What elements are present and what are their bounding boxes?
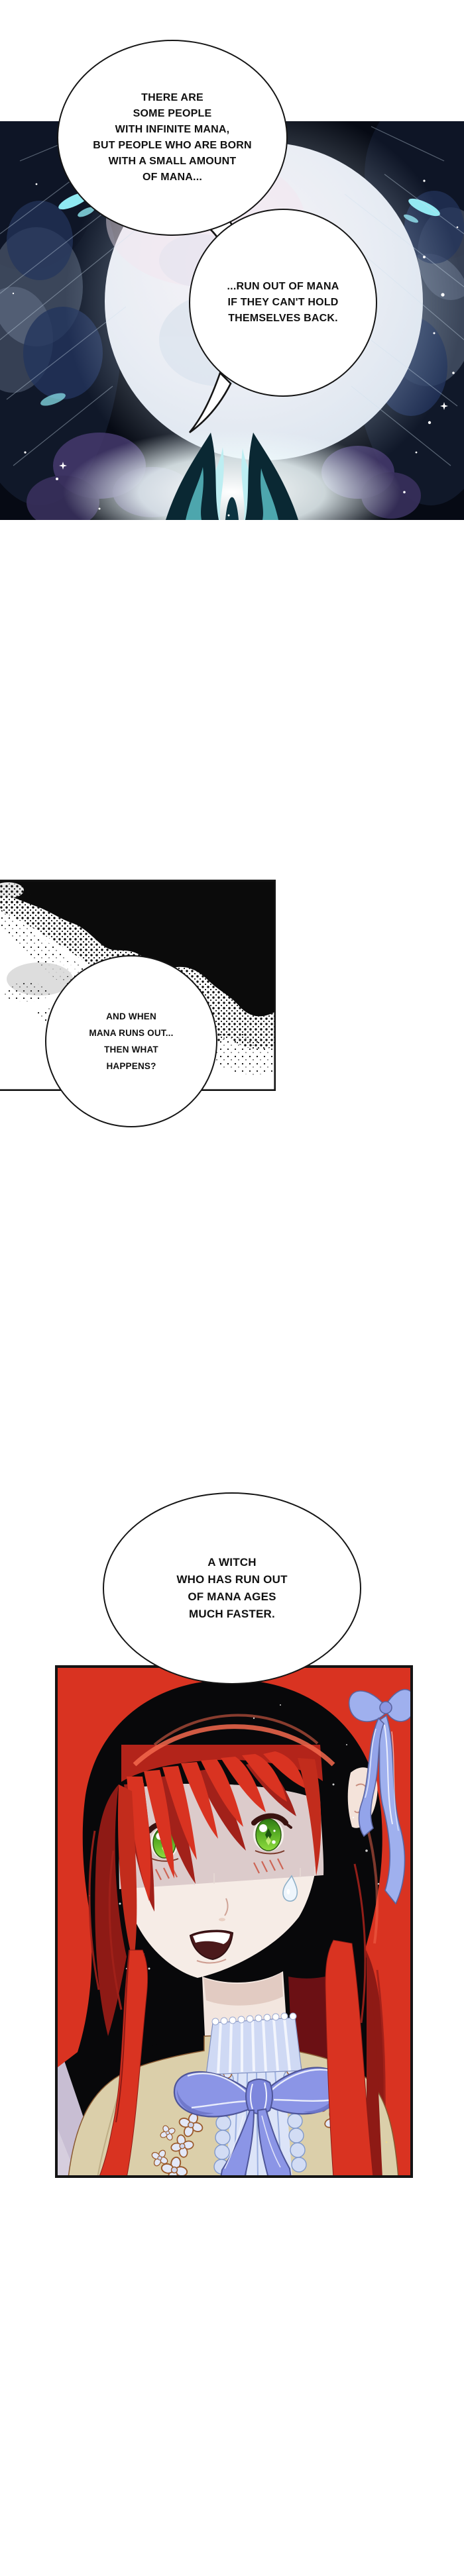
speech-text-line: WITH A SMALL AMOUNT (109, 154, 237, 170)
speech-text-line: HAPPENS? (106, 1058, 156, 1074)
speech-text-line: MANA RUNS OUT... (89, 1025, 173, 1041)
collar (206, 2013, 302, 2075)
speech-text-line: THERE ARE (141, 90, 203, 106)
speech-bubble-1: THERE ARE SOME PEOPLE WITH INFINITE MANA… (57, 40, 288, 236)
speech-text-line: OF MANA AGES (188, 1588, 276, 1606)
speech-text-line: OF MANA... (143, 170, 202, 185)
speech-text-line: THEN WHAT (104, 1041, 158, 1058)
bubble2-tail (190, 373, 231, 433)
speech-bubble-3: AND WHEN MANA RUNS OUT... THEN WHAT HAPP… (45, 955, 217, 1127)
comic-page: THERE ARE SOME PEOPLE WITH INFINITE MANA… (0, 0, 464, 2576)
speech-text-line: IF THEY CAN'T HOLD (227, 295, 338, 311)
panel-girl (55, 1665, 413, 2178)
speech-text-line: ...RUN OUT OF MANA (227, 279, 339, 295)
speech-text-line: AND WHEN (106, 1008, 156, 1025)
speech-text-line: SOME PEOPLE (133, 106, 212, 122)
speech-bubble-4: A WITCH WHO HAS RUN OUT OF MANA AGES MUC… (103, 1492, 361, 1684)
speech-text-line: THEMSELVES BACK. (228, 311, 338, 327)
speech-text-line: WHO HAS RUN OUT (176, 1571, 287, 1588)
speech-bubble-2: ...RUN OUT OF MANA IF THEY CAN'T HOLD TH… (189, 209, 377, 397)
speech-text-line: WITH INFINITE MANA, (115, 122, 230, 138)
speech-text-line: BUT PEOPLE WHO ARE BORN (93, 138, 252, 154)
speech-text-line: MUCH FASTER. (189, 1606, 275, 1623)
speech-text-line: A WITCH (207, 1554, 256, 1571)
